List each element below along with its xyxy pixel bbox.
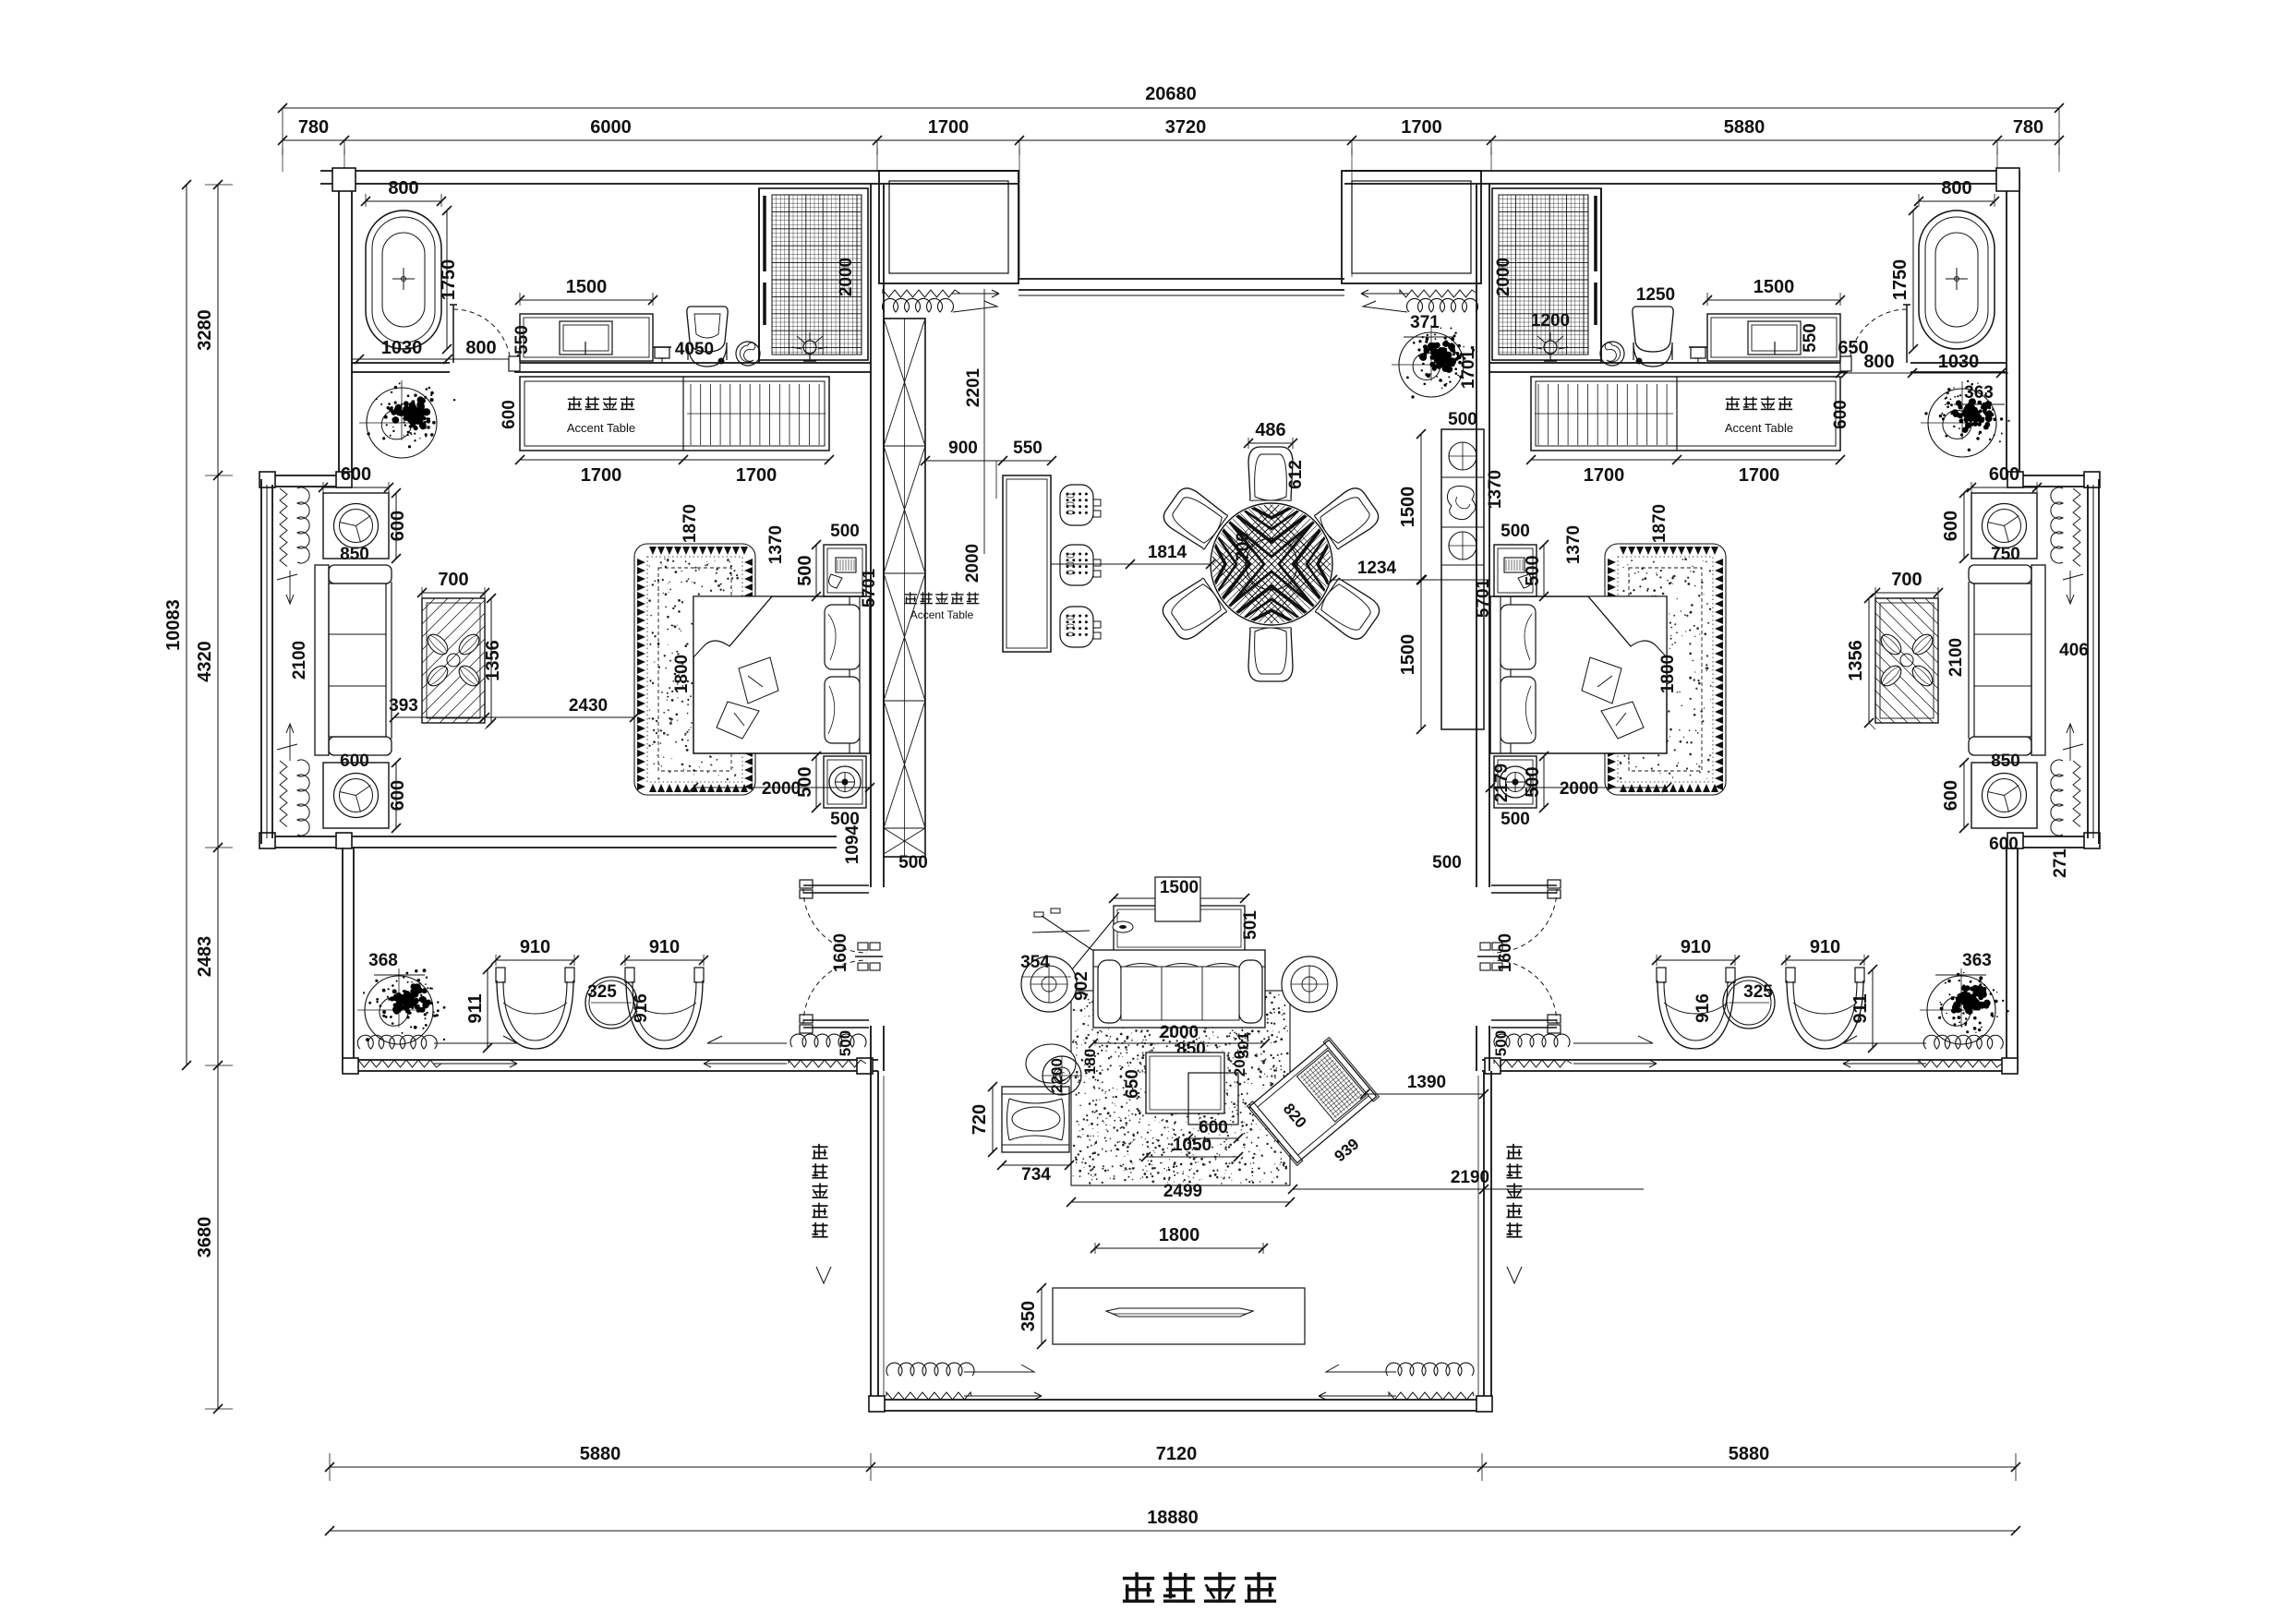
svg-text:700: 700 (1234, 532, 1253, 561)
svg-text:900: 900 (948, 439, 978, 458)
svg-text:500: 500 (1501, 522, 1530, 541)
svg-text:2000: 2000 (1560, 779, 1598, 799)
svg-text:600: 600 (1941, 511, 1961, 541)
svg-text:1500: 1500 (1398, 634, 1418, 676)
svg-text:5701: 5701 (860, 568, 879, 607)
svg-text:2201: 2201 (964, 367, 983, 407)
svg-text:500: 500 (1432, 853, 1462, 872)
svg-text:911: 911 (465, 993, 486, 1023)
svg-text:800: 800 (1941, 178, 1971, 198)
svg-text:1701: 1701 (1459, 349, 1478, 389)
svg-text:325: 325 (587, 982, 617, 1002)
svg-text:1700: 1700 (736, 465, 777, 486)
svg-text:2179: 2179 (1492, 764, 1512, 802)
svg-text:650: 650 (1123, 1069, 1142, 1099)
svg-text:600: 600 (1941, 780, 1961, 811)
svg-text:500: 500 (1501, 810, 1530, 829)
svg-text:7120: 7120 (1156, 1444, 1198, 1464)
svg-text:600: 600 (500, 400, 519, 429)
svg-text:500: 500 (1448, 410, 1477, 429)
svg-text:910: 910 (1810, 937, 1840, 957)
svg-text:2200: 2200 (1048, 1058, 1066, 1093)
svg-text:486: 486 (1255, 420, 1285, 440)
svg-text:18880: 18880 (1147, 1508, 1199, 1528)
svg-text:1600: 1600 (831, 933, 850, 972)
svg-text:1800: 1800 (672, 655, 692, 693)
svg-text:5880: 5880 (1724, 117, 1766, 138)
svg-text:780: 780 (298, 117, 329, 138)
svg-text:354: 354 (1020, 953, 1050, 972)
svg-text:1800: 1800 (1658, 655, 1678, 693)
svg-text:734: 734 (1021, 1165, 1051, 1185)
svg-text:271: 271 (2051, 848, 2070, 878)
svg-text:2483: 2483 (195, 936, 215, 978)
svg-text:550: 550 (512, 325, 532, 355)
svg-text:1030: 1030 (1938, 352, 1980, 372)
svg-text:1094: 1094 (843, 824, 862, 864)
svg-text:650: 650 (1838, 338, 1868, 358)
svg-text:910: 910 (520, 937, 550, 957)
svg-text:1600: 1600 (1496, 933, 1515, 972)
svg-text:600: 600 (1831, 400, 1850, 429)
svg-text:3280: 3280 (195, 309, 215, 351)
svg-text:Accent Table: Accent Table (567, 421, 635, 435)
svg-text:10083: 10083 (163, 599, 184, 651)
svg-text:1814: 1814 (1148, 543, 1187, 562)
svg-text:325: 325 (1743, 982, 1773, 1002)
svg-text:2100: 2100 (1946, 638, 1966, 677)
svg-text:Accent Table: Accent Table (1725, 421, 1793, 435)
svg-text:600: 600 (1199, 1118, 1228, 1137)
svg-text:1370: 1370 (766, 525, 786, 564)
svg-text:600: 600 (341, 464, 371, 485)
svg-text:500: 500 (1523, 766, 1543, 797)
svg-text:550: 550 (1801, 323, 1820, 353)
svg-text:1800: 1800 (1159, 1225, 1200, 1245)
svg-text:1234: 1234 (1357, 559, 1397, 578)
svg-text:4050: 4050 (675, 340, 714, 359)
svg-text:1370: 1370 (1564, 525, 1584, 564)
svg-text:4320: 4320 (195, 641, 215, 682)
svg-text:1870: 1870 (681, 504, 700, 543)
svg-text:2190: 2190 (1451, 1168, 1489, 1187)
svg-text:2100: 2100 (290, 641, 309, 680)
svg-text:700: 700 (1891, 570, 1922, 590)
svg-text:Accent Table: Accent Table (910, 608, 974, 621)
svg-text:1250: 1250 (1636, 285, 1675, 305)
svg-text:1700: 1700 (1401, 117, 1442, 138)
svg-text:1030: 1030 (381, 338, 423, 358)
svg-text:363: 363 (1962, 951, 1992, 970)
svg-text:501: 501 (1241, 910, 1260, 940)
svg-text:1500: 1500 (566, 277, 608, 297)
svg-text:916: 916 (1693, 993, 1713, 1023)
svg-text:200: 200 (1231, 1051, 1248, 1077)
svg-text:1700: 1700 (1739, 465, 1780, 486)
svg-text:612: 612 (1286, 460, 1306, 489)
svg-text:1370: 1370 (1486, 470, 1505, 509)
svg-text:500: 500 (1523, 555, 1543, 585)
svg-text:2000: 2000 (963, 544, 982, 583)
svg-text:368: 368 (368, 951, 398, 970)
svg-text:3680: 3680 (195, 1217, 215, 1258)
svg-text:1200: 1200 (1531, 311, 1570, 331)
svg-text:1500: 1500 (1160, 878, 1199, 897)
svg-text:600: 600 (1989, 464, 2019, 485)
svg-text:500: 500 (795, 555, 815, 585)
svg-text:2000: 2000 (837, 258, 856, 296)
svg-text:1356: 1356 (1846, 640, 1866, 681)
svg-text:550: 550 (1013, 439, 1043, 458)
svg-text:1500: 1500 (1754, 277, 1795, 297)
svg-text:6000: 6000 (590, 117, 632, 138)
svg-text:750: 750 (1991, 545, 2020, 564)
svg-text:780: 780 (2013, 117, 2043, 138)
svg-text:700: 700 (438, 570, 468, 590)
svg-text:1700: 1700 (581, 465, 622, 486)
svg-text:3720: 3720 (1165, 117, 1207, 138)
svg-text:363: 363 (1964, 383, 1994, 403)
svg-text:350: 350 (1018, 1301, 1039, 1331)
svg-text:393: 393 (389, 696, 418, 716)
svg-text:1700: 1700 (1584, 465, 1625, 486)
svg-text:20680: 20680 (1145, 84, 1197, 104)
svg-text:902: 902 (1072, 971, 1091, 1001)
svg-text:850: 850 (340, 545, 369, 564)
svg-text:500: 500 (830, 522, 860, 541)
svg-text:500: 500 (898, 853, 928, 872)
svg-text:850: 850 (1991, 752, 2020, 771)
svg-text:600: 600 (388, 511, 408, 541)
svg-text:1750: 1750 (1890, 259, 1910, 301)
svg-text:1750: 1750 (439, 259, 459, 301)
svg-text:600: 600 (1989, 835, 2019, 854)
svg-text:1870: 1870 (1650, 504, 1669, 543)
svg-text:600: 600 (340, 752, 369, 771)
svg-text:2430: 2430 (569, 696, 608, 716)
svg-text:1500: 1500 (1398, 487, 1418, 528)
svg-text:1050: 1050 (1173, 1136, 1211, 1155)
svg-text:1390: 1390 (1407, 1073, 1446, 1092)
svg-text:406: 406 (2059, 641, 2089, 660)
svg-text:2499: 2499 (1163, 1182, 1202, 1201)
svg-text:500: 500 (795, 766, 815, 797)
svg-text:180: 180 (1081, 1049, 1099, 1075)
svg-text:1700: 1700 (928, 117, 970, 138)
svg-text:5880: 5880 (1729, 1444, 1770, 1464)
svg-text:800: 800 (465, 338, 496, 358)
svg-text:371: 371 (1410, 313, 1440, 332)
svg-text:800: 800 (388, 178, 418, 198)
svg-text:1356: 1356 (483, 640, 503, 681)
svg-text:5880: 5880 (580, 1444, 621, 1464)
svg-text:911: 911 (1850, 993, 1871, 1023)
svg-text:600: 600 (388, 780, 408, 811)
svg-text:910: 910 (649, 937, 680, 957)
svg-text:910: 910 (1681, 937, 1711, 957)
svg-text:2000: 2000 (1494, 258, 1513, 296)
svg-text:720: 720 (970, 1104, 990, 1135)
